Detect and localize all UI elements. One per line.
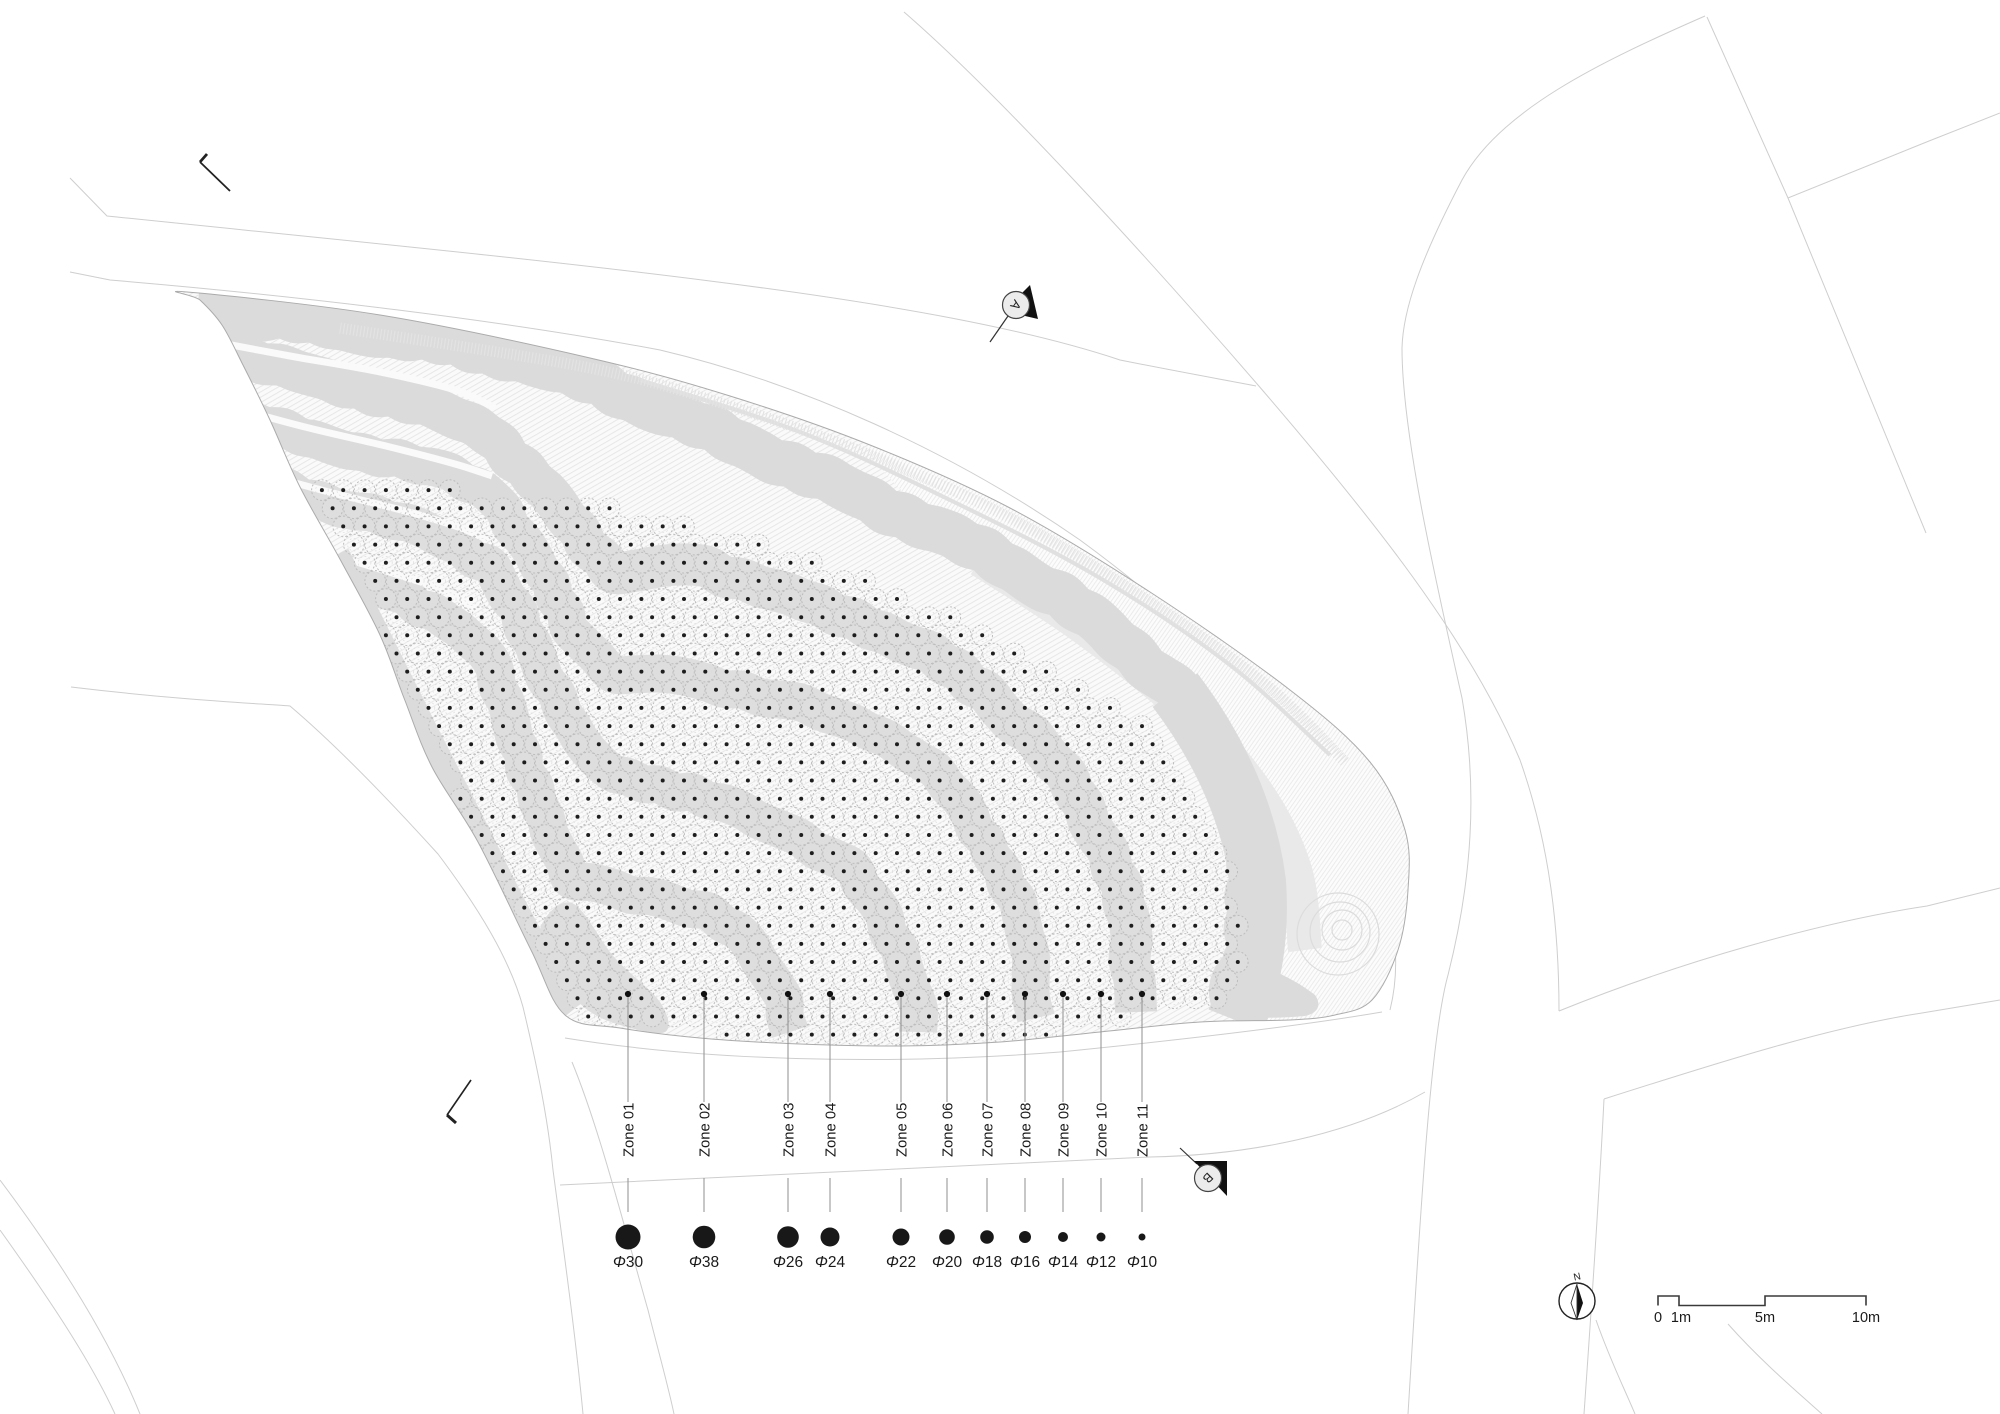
svg-text:Zone 08: Zone 08 xyxy=(1019,1103,1035,1157)
svg-text:10m: 10m xyxy=(1852,1310,1880,1326)
svg-text:Φ20: Φ20 xyxy=(932,1254,963,1271)
svg-text:1m: 1m xyxy=(1671,1310,1691,1326)
svg-text:Zone 04: Zone 04 xyxy=(824,1103,840,1157)
svg-text:Zone 10: Zone 10 xyxy=(1095,1103,1111,1157)
svg-text:Φ16: Φ16 xyxy=(1010,1254,1040,1271)
svg-text:Zone 03: Zone 03 xyxy=(782,1103,798,1157)
svg-text:Φ38: Φ38 xyxy=(689,1254,719,1271)
svg-text:Zone 11: Zone 11 xyxy=(1136,1104,1152,1157)
svg-text:Φ22: Φ22 xyxy=(886,1254,916,1271)
svg-text:Φ14: Φ14 xyxy=(1048,1254,1079,1271)
svg-text:0: 0 xyxy=(1654,1310,1662,1326)
svg-text:Zone 01: Zone 01 xyxy=(622,1103,638,1157)
svg-text:Φ12: Φ12 xyxy=(1086,1254,1116,1271)
svg-text:Zone 06: Zone 06 xyxy=(941,1103,957,1157)
svg-text:5m: 5m xyxy=(1755,1310,1775,1326)
svg-text:Zone 05: Zone 05 xyxy=(895,1103,911,1157)
svg-text:Zone 09: Zone 09 xyxy=(1057,1103,1073,1157)
svg-text:Φ26: Φ26 xyxy=(773,1254,803,1271)
svg-text:Φ18: Φ18 xyxy=(972,1254,1002,1271)
svg-text:Φ10: Φ10 xyxy=(1127,1254,1158,1271)
svg-text:Zone 02: Zone 02 xyxy=(698,1103,714,1157)
svg-text:Φ24: Φ24 xyxy=(815,1254,846,1271)
svg-text:Zone 07: Zone 07 xyxy=(981,1103,997,1157)
svg-text:Φ30: Φ30 xyxy=(613,1254,644,1271)
